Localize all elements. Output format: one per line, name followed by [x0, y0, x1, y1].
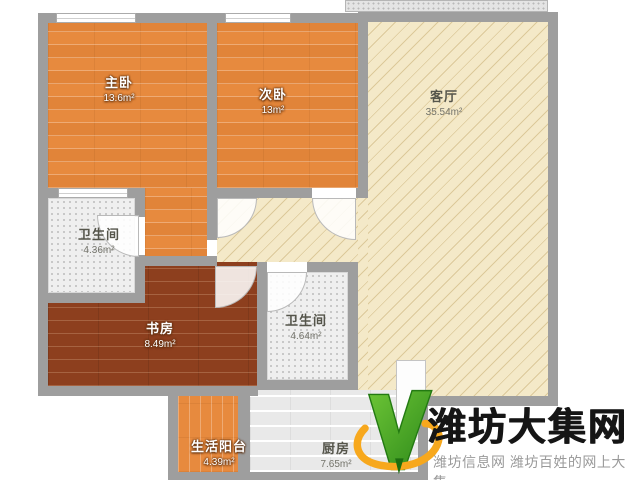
room-area: 4.64m²: [285, 330, 327, 344]
bay-strip: [345, 0, 548, 12]
room-name: 厨房: [320, 440, 351, 458]
room-area: 13m²: [259, 104, 287, 118]
room-label-kitchen: 厨房 7.65m²: [320, 440, 351, 472]
wall-segment: [207, 188, 217, 240]
room-label-second-bedroom: 次卧 13m²: [259, 86, 287, 118]
room-area: 13.6m²: [103, 92, 134, 106]
window: [225, 13, 291, 23]
wall-segment: [140, 256, 217, 266]
room-label-bathroom-1: 卫生间 4.36m²: [78, 226, 120, 258]
room-area: 35.54m²: [426, 106, 463, 120]
room-name: 客厅: [426, 88, 463, 106]
wall-segment: [358, 12, 558, 22]
room-second-bedroom: [217, 23, 358, 188]
wall-segment: [38, 386, 258, 396]
room-label-living-room: 客厅 35.54m²: [426, 88, 463, 120]
wall-segment: [257, 262, 267, 272]
wall-segment: [548, 12, 558, 406]
room-name: 卫生间: [78, 226, 120, 244]
wall-segment: [257, 262, 267, 390]
wall-segment: [356, 188, 368, 198]
room-label-study: 书房 8.49m²: [144, 320, 175, 352]
wall-segment: [348, 262, 358, 390]
wall-segment: [38, 293, 145, 303]
room-name: 生活阳台: [191, 438, 247, 456]
wall-segment: [38, 13, 48, 396]
wall-segment: [257, 380, 358, 390]
floorplan-canvas: 主卧 13.6m² 次卧 13m² 客厅 35.54m² 卫生间 4.36m² …: [0, 0, 640, 480]
room-corridor: [145, 188, 207, 262]
room-area: 4.36m²: [78, 244, 120, 258]
wall-segment: [358, 12, 368, 193]
wall-segment: [168, 386, 178, 480]
watermark-subtitle: 潍坊信息网 潍坊百姓的网上大集: [433, 452, 640, 480]
room-area: 8.49m²: [144, 338, 175, 352]
room-area: 7.65m²: [320, 458, 351, 472]
window: [56, 13, 136, 23]
room-name: 卫生间: [285, 312, 327, 330]
room-living-room-strip: [358, 193, 368, 396]
room-label-bathroom-2: 卫生间 4.64m²: [285, 312, 327, 344]
wall-segment: [207, 13, 217, 198]
watermark-title: 潍坊大集网: [428, 396, 628, 451]
room-label-master-bedroom: 主卧 13.6m²: [103, 74, 134, 106]
window: [58, 188, 128, 198]
room-name: 书房: [144, 320, 175, 338]
room-name: 主卧: [103, 74, 134, 92]
room-label-balcony: 生活阳台 4.39m²: [191, 438, 247, 470]
wall-segment: [207, 188, 312, 198]
room-living-room: [368, 22, 548, 396]
room-name: 次卧: [259, 86, 287, 104]
room-area: 4.39m²: [191, 456, 247, 470]
